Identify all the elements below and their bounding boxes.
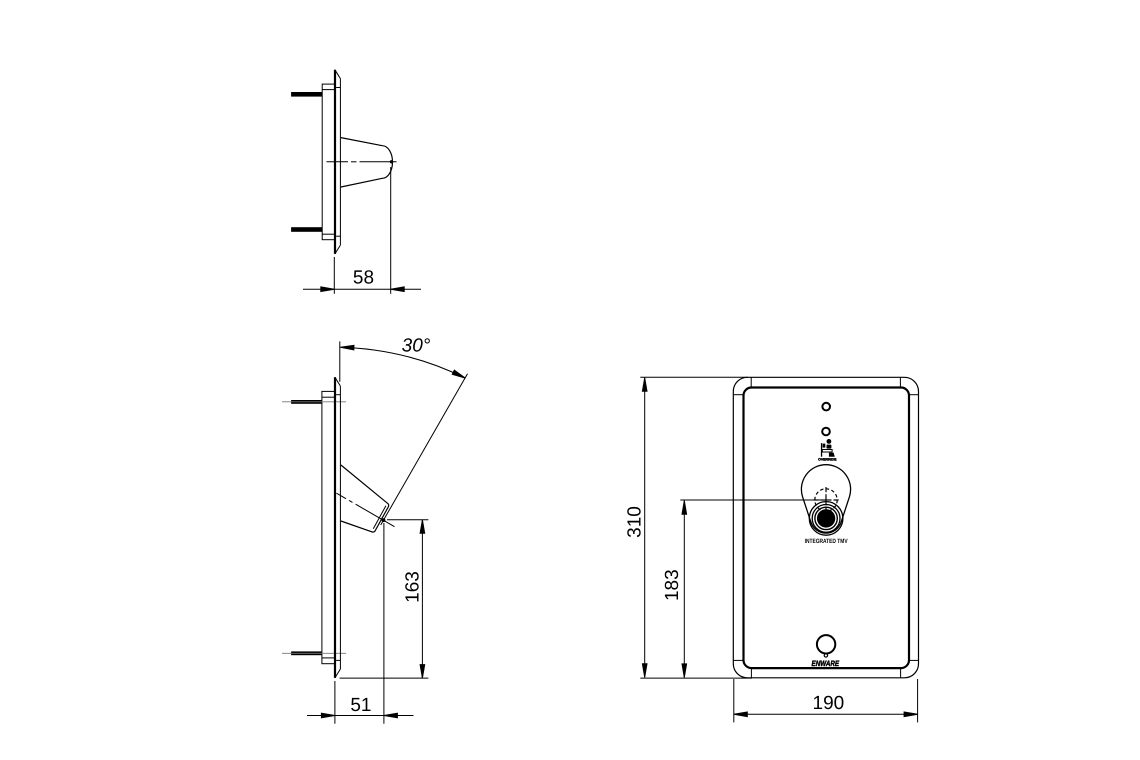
- svg-text:183: 183: [662, 569, 683, 601]
- svg-text:30°: 30°: [402, 336, 431, 357]
- svg-text:OVERRIDE: OVERRIDE: [818, 458, 837, 462]
- svg-text:163: 163: [402, 571, 423, 603]
- svg-text:ENWARE: ENWARE: [812, 659, 840, 668]
- svg-text:310: 310: [624, 506, 645, 538]
- svg-text:58: 58: [353, 267, 374, 288]
- svg-text:INTEGRATED TMV: INTEGRATED TMV: [805, 538, 849, 545]
- svg-text:51: 51: [350, 695, 371, 716]
- svg-text:190: 190: [813, 693, 845, 714]
